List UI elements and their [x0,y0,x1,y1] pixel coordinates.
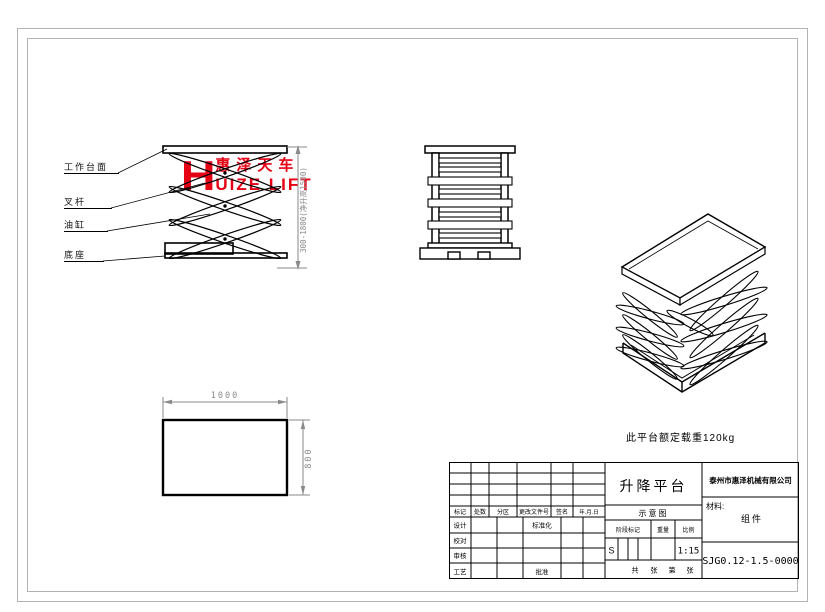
rev-header-date: 年.月.日 [579,508,599,516]
cross-bars [428,158,512,238]
role-check: 校对 [454,536,468,545]
sheet-no-unit: 张 [687,566,694,575]
plan-height-dim: 800 [304,447,314,468]
side-view [418,140,523,265]
title-block: 标记 处数 分区 更改文件号 签名 年.月.日 设计 校对 审核 工艺 标准化 … [449,462,799,579]
plan-rectangle [163,420,287,495]
drawing-number: SJG0.12-1.5-0000 [702,556,798,567]
weight-header: 重量 [657,526,669,534]
role-process: 工艺 [454,568,468,576]
plan-width-dim: 1000 [211,391,239,401]
product-title: 升降平台 [620,478,688,494]
stage-mark-header: 阶段标记 [616,526,640,534]
stage-header-row: 阶段标记 重量 比例 [616,526,695,534]
scale-value: 1:15 [678,547,700,557]
role-standardization: 标准化 [532,521,552,530]
role-approve: 批准 [536,567,550,576]
rev-header-mark: 标记 [454,508,466,516]
platform-top [163,146,287,153]
material-label: 材料: [706,501,724,511]
sheet-no-label: 第 [669,566,676,575]
revision-header-row: 标记 处数 分区 更改文件号 签名 年.月.日 [454,508,599,516]
pivot-dots [223,171,226,240]
side-base [420,243,520,259]
drawing-type: 示意图 [639,508,669,518]
isometric-view [598,193,798,398]
rated-load-note: 此平台额定载重120kg [626,429,735,444]
rev-header-count: 处数 [474,508,486,516]
role-design: 设计 [454,521,468,530]
role-review: 审核 [454,551,468,560]
scale-header: 比例 [682,526,694,534]
drawing-sheet: H 惠泽天车 UIZE LIFT [0,0,825,612]
company-name: 泰州市惠泽机械有限公司 [708,475,792,485]
rev-header-docno: 更改文件号 [519,508,549,516]
height-dim-text: 300-1800(净升高1500) [298,167,308,253]
sheet-row: 共 张 第 张 [632,566,694,575]
rev-header-sign: 签名 [556,508,568,516]
rev-header-zone: 分区 [497,508,509,516]
plan-view: 1000 800 [148,388,323,510]
front-view: 300-1800(净升高1500) [55,140,325,280]
sheet-total-unit: 张 [651,566,658,575]
sheet-total-label: 共 [632,566,639,575]
stage-mark-value: S [608,546,614,556]
material-value: 组件 [741,513,763,524]
